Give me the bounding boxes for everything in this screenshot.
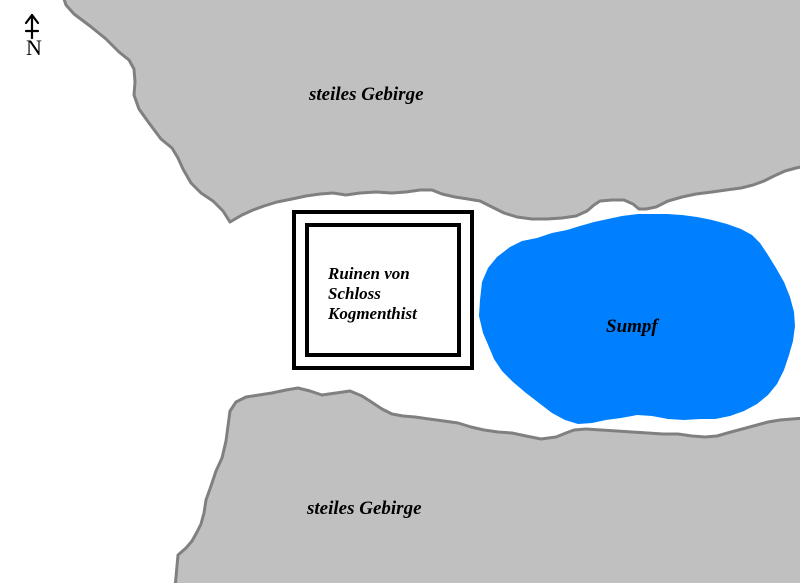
- label-steep-mountains-south: steiles Gebirge: [307, 498, 422, 520]
- ruins-label-line1: Ruinen von: [328, 264, 417, 284]
- map-canvas: N steiles Gebirge steiles Gebirge Sumpf …: [0, 0, 800, 583]
- ruins-label-line2: Schloss: [328, 284, 417, 304]
- label-steep-mountains-north: steiles Gebirge: [309, 84, 424, 106]
- ruins-inner-frame: Ruinen von Schloss Kogmenthist: [305, 223, 461, 357]
- ruins-outer-frame: Ruinen von Schloss Kogmenthist: [292, 210, 474, 370]
- label-castle-ruins: Ruinen von Schloss Kogmenthist: [328, 264, 417, 324]
- label-swamp: Sumpf: [606, 316, 658, 338]
- compass-north-label: N: [24, 35, 44, 61]
- mountain-region-north: [63, 0, 800, 222]
- ruins-label-line3: Kogmenthist: [328, 304, 417, 324]
